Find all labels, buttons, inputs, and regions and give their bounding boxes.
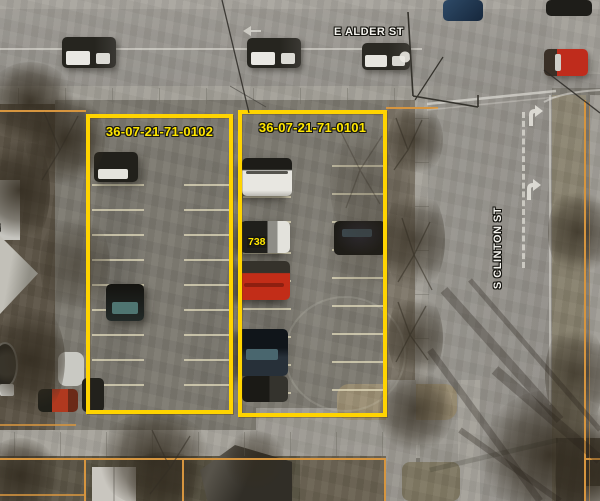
yard-bottom-right <box>300 456 386 501</box>
car-road-west-3 <box>362 43 410 70</box>
parcel-left-id-label: 36-07-21-71-0102 <box>90 124 229 139</box>
parcel-line <box>0 110 86 112</box>
car-road-west-2 <box>247 38 301 68</box>
map-canvas[interactable]: 36-07-21-71-0102 36-07-21-71-0101 <box>0 0 600 501</box>
car-red-road <box>544 49 588 76</box>
rear-glass <box>96 53 110 64</box>
car-road-west-1 <box>62 37 116 68</box>
rear-glass <box>392 56 405 66</box>
parcel-line <box>0 458 386 460</box>
windshield <box>555 54 561 71</box>
parcel-line <box>586 458 600 460</box>
lane-dash-clinton <box>522 112 525 268</box>
parcel-line <box>0 494 84 496</box>
tree <box>548 185 600 280</box>
parcel-line <box>182 458 184 501</box>
tree <box>378 368 453 453</box>
car-blue-intersection <box>443 0 483 21</box>
parcel-line <box>84 458 86 501</box>
parcel-line <box>384 460 386 501</box>
street-label-s-clinton: S CLINTON ST <box>492 202 504 294</box>
rear-glass <box>281 53 295 64</box>
car-dark-top-right <box>546 0 592 16</box>
parcel-right-id-label: 36-07-21-71-0101 <box>242 120 383 135</box>
sidewalk-vertical-bottom-right <box>458 380 480 501</box>
parcel-right[interactable]: 36-07-21-71-0101 <box>238 110 387 417</box>
windshield <box>66 51 90 65</box>
parcel-line <box>386 107 438 109</box>
grass-patch-olive <box>402 462 460 501</box>
tree <box>225 430 285 490</box>
parcel-line <box>0 424 76 426</box>
windshield <box>365 55 387 67</box>
road-alder-north-edge <box>0 0 600 9</box>
parcel-left[interactable]: 36-07-21-71-0102 <box>86 114 233 414</box>
address-label-738: 738 <box>247 236 267 248</box>
street-label-e-alder: E ALDER ST <box>334 26 404 38</box>
windshield <box>251 52 275 65</box>
parcel-line <box>584 100 586 501</box>
parcel-line <box>589 102 590 501</box>
